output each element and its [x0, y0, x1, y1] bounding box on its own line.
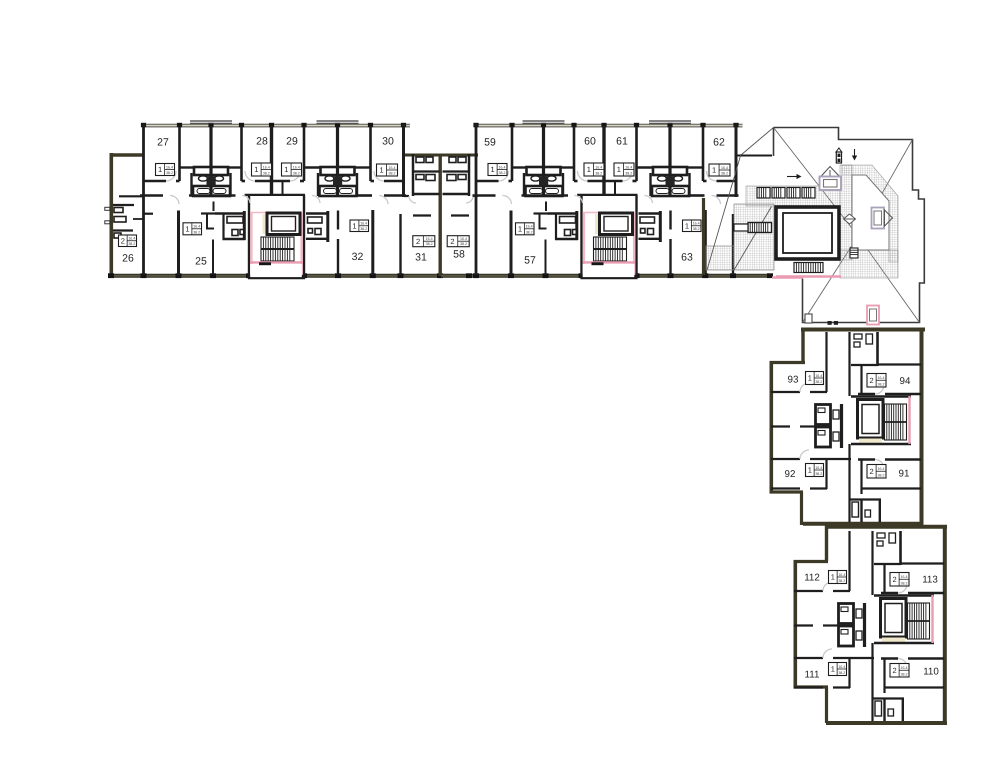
svg-text:16.4: 16.4	[460, 237, 467, 241]
svg-text:2: 2	[869, 376, 873, 385]
svg-text:91: 91	[899, 469, 910, 480]
svg-text:93: 93	[788, 375, 799, 386]
svg-text:113: 113	[922, 575, 938, 586]
svg-text:38.2: 38.2	[878, 474, 885, 478]
svg-text:61: 61	[616, 136, 628, 148]
svg-text:2: 2	[892, 666, 896, 675]
svg-text:2: 2	[869, 467, 873, 476]
svg-text:28: 28	[256, 136, 268, 148]
svg-text:38.2: 38.2	[901, 582, 908, 586]
svg-text:62: 62	[713, 137, 725, 149]
svg-text:94: 94	[900, 376, 911, 387]
svg-text:38.2: 38.2	[838, 579, 845, 583]
svg-text:16.4: 16.4	[878, 376, 885, 380]
svg-text:30: 30	[382, 136, 394, 148]
svg-text:92: 92	[785, 469, 796, 480]
svg-text:32: 32	[352, 251, 364, 263]
svg-text:112: 112	[804, 573, 820, 584]
svg-text:2: 2	[121, 236, 125, 245]
svg-text:38.2: 38.2	[815, 472, 822, 476]
svg-text:38.2: 38.2	[901, 673, 908, 677]
svg-text:38.2: 38.2	[460, 242, 467, 246]
svg-text:1: 1	[831, 665, 835, 674]
svg-text:2: 2	[892, 575, 896, 584]
svg-text:58: 58	[453, 249, 465, 261]
svg-text:38.2: 38.2	[128, 242, 135, 246]
svg-text:16.4: 16.4	[838, 573, 845, 577]
svg-text:16.4: 16.4	[815, 466, 822, 470]
svg-text:60: 60	[584, 136, 596, 148]
svg-text:16.4: 16.4	[426, 237, 433, 241]
svg-text:1: 1	[808, 466, 812, 475]
svg-text:27: 27	[157, 137, 169, 149]
svg-text:57: 57	[524, 255, 536, 267]
svg-text:63: 63	[681, 251, 693, 263]
svg-text:2: 2	[416, 237, 420, 246]
svg-text:111: 111	[805, 670, 820, 681]
svg-text:38.2: 38.2	[878, 383, 885, 387]
svg-text:16.4: 16.4	[901, 575, 908, 579]
svg-text:1: 1	[831, 573, 835, 582]
svg-text:16.4: 16.4	[838, 665, 845, 669]
svg-text:38.2: 38.2	[838, 671, 845, 675]
svg-text:59: 59	[484, 137, 496, 149]
svg-text:29: 29	[286, 136, 298, 148]
svg-text:16.4: 16.4	[815, 374, 822, 378]
svg-text:38.2: 38.2	[815, 380, 822, 384]
svg-text:110: 110	[923, 667, 939, 678]
svg-text:31: 31	[415, 251, 427, 263]
svg-text:16.4: 16.4	[901, 666, 908, 670]
svg-text:38.2: 38.2	[426, 242, 433, 246]
svg-text:25: 25	[195, 256, 207, 268]
svg-text:26: 26	[122, 253, 134, 265]
svg-text:16.4: 16.4	[128, 237, 135, 241]
svg-text:2: 2	[450, 237, 454, 246]
svg-text:1: 1	[808, 374, 812, 383]
svg-text:16.4: 16.4	[878, 467, 885, 471]
